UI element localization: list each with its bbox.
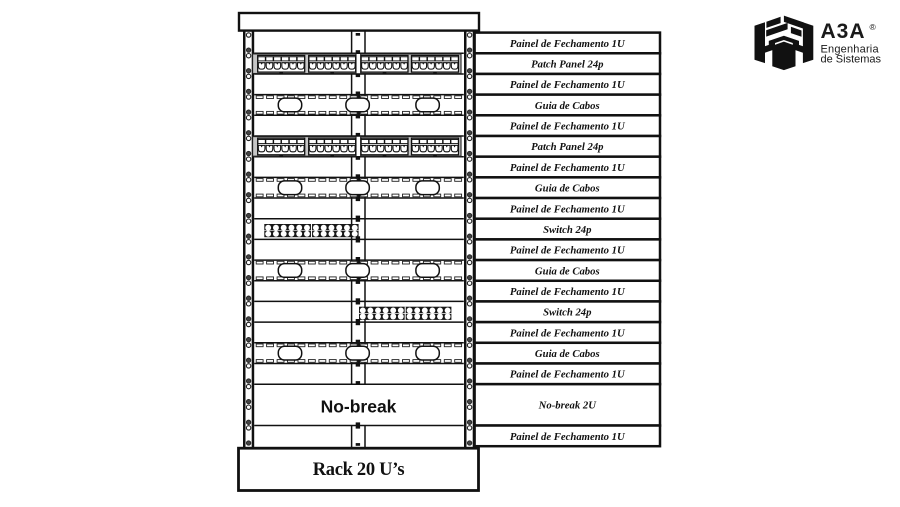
svg-text:Painel de Fechamento 1U: Painel de Fechamento 1U	[510, 203, 626, 215]
svg-text:No-break: No-break	[321, 396, 397, 416]
svg-text:Guia de Cabos: Guia de Cabos	[535, 265, 600, 277]
svg-text:Rack 20 U’s: Rack 20 U’s	[313, 460, 405, 480]
svg-text:de Sistemas: de Sistemas	[821, 53, 882, 65]
svg-text:A3A: A3A	[821, 20, 866, 43]
svg-text:No-break 2U: No-break 2U	[538, 400, 598, 412]
svg-text:Painel de Fechamento 1U: Painel de Fechamento 1U	[510, 327, 626, 339]
svg-text:Painel de Fechamento 1U: Painel de Fechamento 1U	[510, 162, 626, 174]
svg-text:Patch Panel 24p: Patch Panel 24p	[531, 141, 604, 153]
svg-text:Painel de Fechamento 1U: Painel de Fechamento 1U	[510, 369, 626, 381]
svg-text:Patch Panel 24p: Patch Panel 24p	[531, 59, 604, 71]
svg-text:Switch 24p: Switch 24p	[543, 224, 592, 236]
svg-text:Switch 24p: Switch 24p	[543, 307, 592, 319]
svg-text:Guia de Cabos: Guia de Cabos	[535, 100, 600, 112]
svg-text:Painel de Fechamento 1U: Painel de Fechamento 1U	[510, 286, 626, 298]
svg-text:Guia de Cabos: Guia de Cabos	[535, 348, 600, 360]
svg-text:®: ®	[870, 22, 877, 32]
svg-text:Painel de Fechamento 1U: Painel de Fechamento 1U	[510, 79, 626, 91]
svg-text:Painel de Fechamento 1U: Painel de Fechamento 1U	[510, 38, 626, 50]
svg-text:Painel de Fechamento 1U: Painel de Fechamento 1U	[510, 121, 626, 133]
svg-text:Painel de Fechamento 1U: Painel de Fechamento 1U	[510, 245, 626, 257]
svg-text:Guia de Cabos: Guia de Cabos	[535, 183, 600, 195]
svg-text:Painel de Fechamento 1U: Painel de Fechamento 1U	[510, 431, 626, 443]
